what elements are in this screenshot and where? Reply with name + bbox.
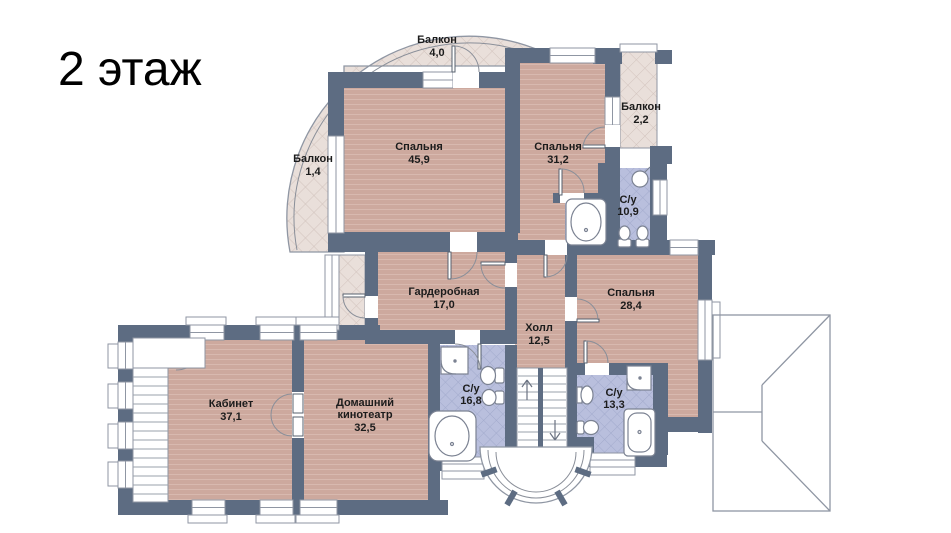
window: [698, 300, 712, 360]
bay-balcony: [480, 447, 592, 506]
label-bathroom-bottom-name: С/у: [605, 387, 623, 399]
window: [670, 240, 698, 255]
label-home-theater-name2: кинотеатр: [337, 409, 392, 421]
window: [260, 500, 293, 515]
label-bedroom-mid-area: 31,2: [547, 154, 568, 166]
label-home-theater-area: 32,5: [354, 422, 375, 434]
window: [605, 97, 620, 125]
label-bedroom-large-area: 45,9: [408, 154, 429, 166]
window: [328, 136, 344, 233]
window: [260, 325, 294, 340]
label-balcony-left-area: 1,4: [305, 166, 321, 178]
label-office-name: Кабинет: [209, 398, 254, 410]
sink: [577, 386, 593, 404]
window: [300, 500, 337, 515]
window: [653, 180, 667, 215]
bidet: [482, 390, 504, 406]
label-wardrobe-name: Гардеробная: [408, 286, 479, 298]
window: [550, 48, 595, 63]
window: [118, 422, 133, 449]
window: [118, 461, 133, 488]
label-balcony-top-name: Балкон: [417, 34, 457, 46]
toilet: [577, 421, 599, 435]
balcony-side-strip: [339, 255, 365, 330]
roof-outline: [713, 315, 830, 511]
label-balcony-left-name: Балкон: [293, 153, 333, 165]
window: [118, 342, 133, 369]
bathtub: [566, 199, 606, 245]
bidet: [636, 226, 649, 247]
label-balcony-right-name: Балкон: [621, 101, 661, 113]
label-hall-area: 12,5: [528, 335, 549, 347]
label-bedroom-right-area: 28,4: [620, 300, 642, 312]
label-hall-name: Холл: [525, 322, 553, 334]
bathtub: [429, 411, 476, 461]
label-home-theater-name1: Домашний: [336, 397, 394, 409]
bathtub: [624, 409, 655, 456]
shower: [627, 366, 651, 390]
label-bedroom-mid-name: Спальня: [534, 141, 582, 153]
window: [118, 382, 133, 409]
label-bathroom-center-name: С/у: [462, 383, 480, 395]
label-bedroom-large-name: Спальня: [395, 141, 443, 153]
label-bathroom-center-area: 16,8: [460, 395, 481, 407]
label-office-area: 37,1: [220, 411, 241, 423]
toilet: [481, 367, 505, 385]
window: [192, 500, 225, 515]
balcony-right-area: [620, 52, 657, 148]
label-wardrobe-area: 17,0: [433, 299, 454, 311]
window: [300, 325, 337, 340]
label-balcony-top-area: 4,0: [429, 47, 444, 59]
floor-plan-page: 2 этаж: [0, 0, 951, 533]
room-hall: [515, 252, 567, 375]
toilet: [618, 226, 631, 247]
shower: [441, 347, 468, 374]
label-bathroom-top-area: 10,9: [617, 206, 638, 218]
floor-plan-drawing: Балкон 4,0 Балкон 1,4 Балкон 2,2 Спальня…: [0, 0, 951, 533]
label-bedroom-right-name: Спальня: [607, 287, 655, 299]
window: [423, 72, 453, 88]
label-bathroom-top-name: С/у: [619, 194, 637, 206]
main-staircase: [517, 368, 567, 453]
label-bathroom-bottom-area: 13,3: [603, 399, 624, 411]
label-balcony-right-area: 2,2: [633, 114, 648, 126]
